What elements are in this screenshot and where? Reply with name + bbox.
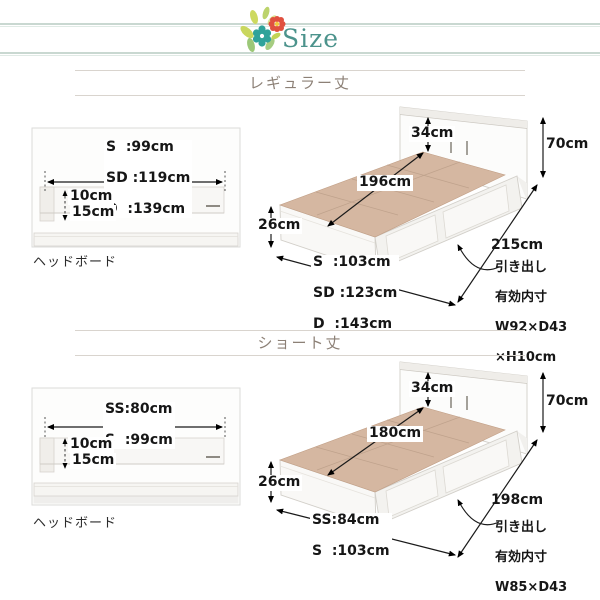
size-line: SD :119cm: [106, 170, 190, 186]
drawer-note-line: W85×D43: [495, 580, 567, 595]
headboard-size-list: S :99cm SD :119cm D :139cm: [104, 140, 192, 218]
bed-diagram-short: 34cm 70cm 180cm 26cm 198cm SS:84cm S :10…: [255, 350, 600, 585]
total-height-label: 70cm: [546, 137, 588, 153]
page-title: Size: [282, 24, 339, 53]
shelf-height-label: 34cm: [409, 126, 455, 142]
inner-length-label: 180cm: [367, 426, 423, 442]
bed-diagram-regular: 34cm 70cm 196cm 26cm 215cm S :103cm SD :…: [255, 95, 600, 330]
headboard-drawing: [20, 365, 280, 535]
headboard-diagram-short: SS:80cm S :99cm 10cm 15cm ヘッドボード: [20, 365, 280, 535]
size-line: S :99cm: [105, 432, 173, 448]
drawer-note-line: 引き出し: [495, 260, 547, 275]
shelf-depth-bottom-label: 15cm: [70, 205, 116, 221]
headboard-base: [34, 483, 238, 496]
headboard-left-cap: [40, 438, 54, 472]
size-line: SS:80cm: [105, 401, 173, 417]
size-guide-page: Size レギュラー丈 S :99cm SD :119cm D :139cm: [0, 0, 600, 600]
headboard-left-cap: [40, 187, 54, 221]
drawer-note-line: 有効内寸: [495, 550, 547, 565]
width-line: SS:84cm: [312, 512, 380, 528]
size-line: D :139cm: [106, 201, 185, 217]
width-line: S :103cm: [312, 543, 390, 559]
bed-width-list: S :103cm SD :123cm D :143cm: [311, 255, 399, 333]
bed-width-list: SS:84cm S :103cm: [310, 513, 392, 560]
section-title-regular: レギュラー丈: [75, 70, 525, 96]
drawer-note: 引き出し 有効内寸 W85×D43 ×H10cm: [495, 520, 567, 600]
width-line: S :103cm: [313, 254, 391, 270]
inner-length-label: 196cm: [357, 175, 413, 191]
drawer-note-line: 引き出し: [495, 520, 547, 535]
width-line: SD :123cm: [313, 285, 397, 301]
floor-shadow: [34, 496, 239, 504]
headboard-caption: ヘッドボード: [33, 512, 117, 531]
shelf-depth-top-label: 10cm: [68, 189, 114, 205]
drawer-note-line: 有効内寸: [495, 290, 547, 305]
size-line: S :99cm: [106, 139, 174, 155]
headboard-caption: ヘッドボード: [33, 251, 117, 270]
shelf-height-label: 34cm: [409, 381, 455, 397]
headboard-diagram-regular: S :99cm SD :119cm D :139cm 10cm 15cm ヘッド…: [20, 105, 280, 275]
total-height-label: 70cm: [546, 394, 588, 410]
shelf-depth-top-label: 10cm: [68, 437, 114, 453]
headboard-base: [34, 233, 238, 246]
total-length-label: 215cm: [491, 238, 543, 254]
flower-icon: [240, 4, 286, 54]
shelf-depth-bottom-label: 15cm: [70, 453, 116, 469]
base-height-label: 26cm: [256, 475, 302, 491]
header-rule-bottom-thin: [0, 55, 600, 56]
total-length-label: 198cm: [491, 493, 543, 509]
base-height-label: 26cm: [256, 218, 302, 234]
